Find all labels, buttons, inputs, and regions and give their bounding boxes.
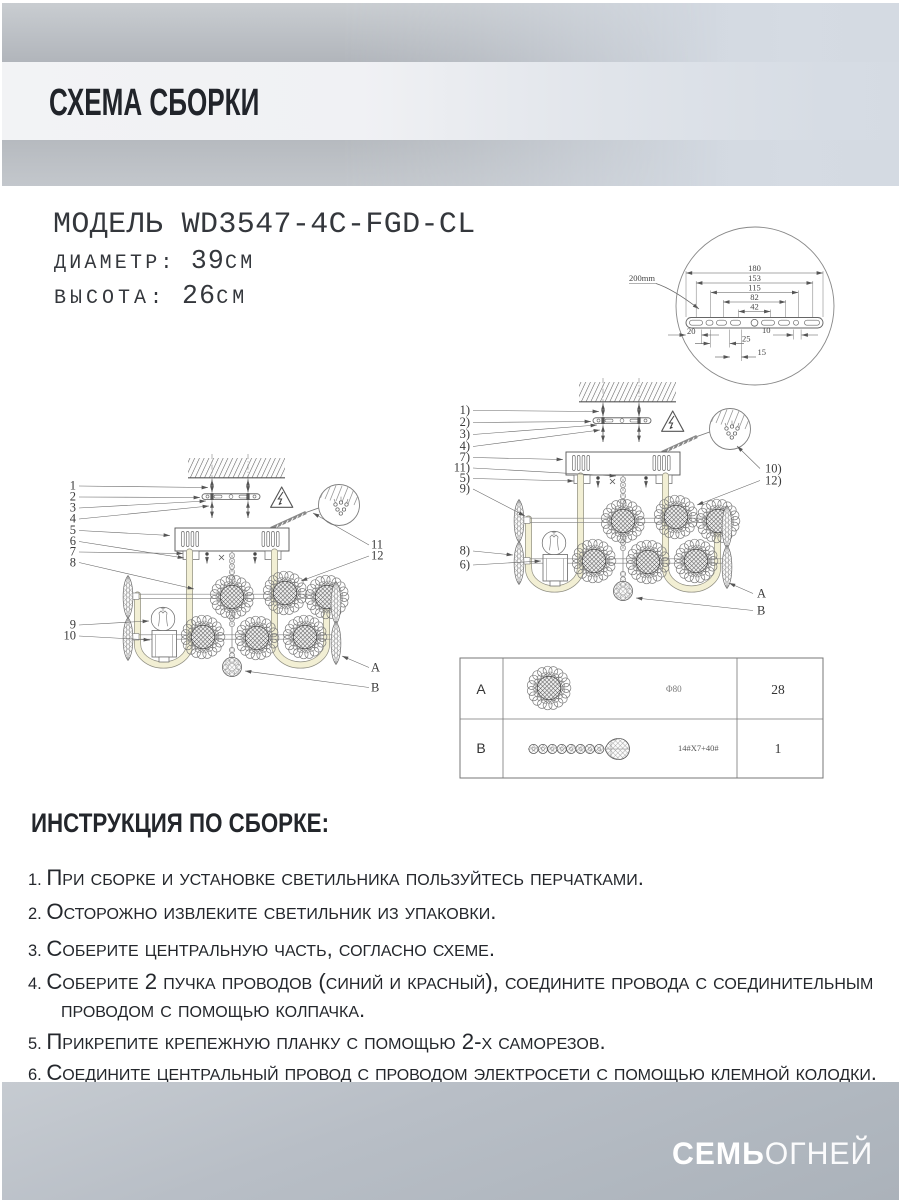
svg-text:42: 42 <box>750 302 759 312</box>
svg-text:12): 12) <box>765 474 782 488</box>
svg-text:Φ80: Φ80 <box>666 684 682 694</box>
svg-text:9): 9) <box>460 482 470 496</box>
svg-text:180: 180 <box>748 263 761 273</box>
svg-text:115: 115 <box>748 283 760 293</box>
svg-text:153: 153 <box>748 273 761 283</box>
svg-text:1: 1 <box>775 741 782 756</box>
svg-text:10: 10 <box>762 325 771 335</box>
svg-text:A: A <box>476 681 486 697</box>
svg-text:8: 8 <box>70 556 76 570</box>
svg-text:25: 25 <box>742 334 751 344</box>
svg-text:6): 6) <box>460 558 470 572</box>
svg-text:A: A <box>371 661 380 675</box>
svg-text:14#X7+40#: 14#X7+40# <box>678 743 719 753</box>
svg-text:A: A <box>757 587 766 601</box>
svg-text:10: 10 <box>64 629 77 643</box>
svg-text:12: 12 <box>371 549 384 563</box>
svg-text:B: B <box>757 604 765 618</box>
svg-text:B: B <box>371 681 379 695</box>
svg-text:15: 15 <box>758 347 767 357</box>
svg-text:82: 82 <box>750 292 759 302</box>
svg-text:200mm: 200mm <box>629 273 655 283</box>
svg-text:B: B <box>476 740 485 756</box>
svg-text:8): 8) <box>460 544 470 558</box>
svg-text:20: 20 <box>687 326 696 336</box>
svg-text:28: 28 <box>771 682 785 697</box>
